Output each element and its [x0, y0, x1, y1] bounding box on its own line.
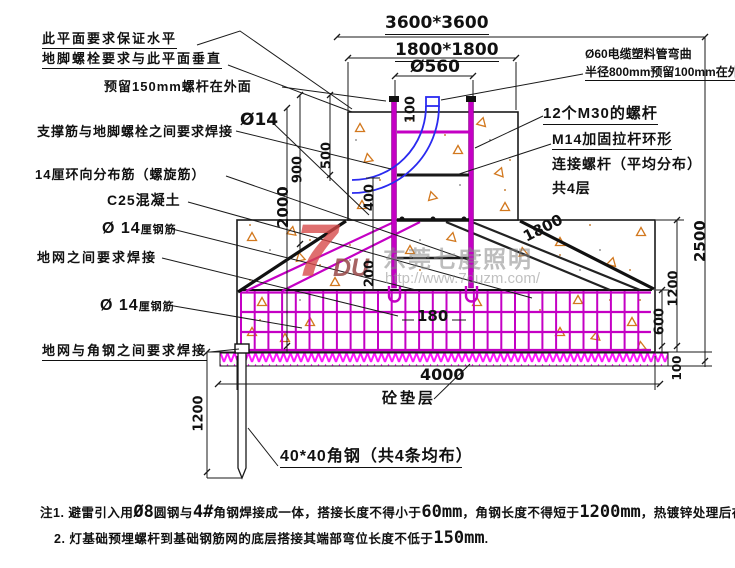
label-rebar14-upper-dia: Ø 14	[102, 220, 141, 237]
label-rebar14-upper-text: 厘钢筋	[141, 224, 177, 236]
label-spiral-rebar: 14厘环向分布筋（螺旋筋）	[35, 167, 205, 183]
note1-text-a: 注1. 避雷引入用	[40, 506, 133, 520]
dim-1200-right: 1200	[667, 269, 682, 309]
label-reserve-150: 预留150mm螺杆在外面	[104, 79, 252, 95]
label-rebar14-lower-text: 厘钢筋	[139, 301, 175, 313]
note1-text-g: ，角钢长度不得短于	[462, 506, 579, 520]
label-concrete-c25: C25混凝土	[107, 192, 181, 209]
dim-900: 900	[291, 150, 306, 190]
note1-text-e: 角钢焊接成一体，搭接长度不得小于	[213, 506, 421, 520]
dim-4000: 4000	[420, 365, 465, 384]
label-rebar14-lower-dia: Ø 14	[100, 297, 139, 314]
label-angle-steel: 40*40角钢（共4条均布）	[280, 447, 462, 468]
note2-text-a: 2. 灯基础预埋螺杆到基础钢筋网的底层搭接其端部弯位长度不低于	[54, 532, 433, 546]
label-anchor-perpendicular: 地脚螺栓要求与此平面垂直	[42, 51, 222, 69]
label-tie-m14-line1: M14加固拉杆环形	[552, 131, 672, 150]
label-bolts-m30: 12个M30的螺杆	[543, 105, 658, 125]
dim-2500: 2500	[691, 222, 709, 262]
note1-num-d8: Ø8	[133, 502, 153, 522]
note1-text-i: ，热镀锌处理后在浇入素砼前打入基础坑底	[641, 506, 735, 520]
note2-num-150: 150mm	[433, 528, 484, 548]
foundation-drawing: 7 DU 东莞七度照明 http://www.7duzm.com/ 此平面要求保…	[0, 0, 735, 568]
label-rebar14-upper: Ø 14厘钢筋	[102, 219, 177, 238]
dim-200: 200	[363, 254, 378, 294]
dim-1200-left: 1200	[192, 394, 207, 434]
note1-num-4: 4#	[193, 502, 213, 522]
label-cable-pipe-2: 半径800mm预留100mm在外面	[585, 65, 735, 81]
dim-plan-outer: 3600*3600	[385, 13, 489, 35]
label-tie-m14-line3: 共4层	[552, 180, 591, 197]
dim-180: 180	[417, 307, 448, 325]
label-cable-pipe-1: Ø60电缆塑料管弯曲	[585, 47, 692, 61]
dim-bolt-circle: Ø560	[410, 57, 460, 77]
note-line-2: 2. 灯基础预埋螺杆到基础钢筋网的底层搭接其端部弯位长度不低于150mm.	[54, 528, 489, 548]
label-plane-level: 此平面要求保证水平	[42, 31, 177, 49]
dim-100-top: 100	[404, 90, 419, 130]
note-line-1: 注1. 避雷引入用Ø8圆钢与4#角钢焊接成一体，搭接长度不得小于60mm，角钢长…	[40, 502, 735, 522]
note1-text-c: 圆钢与	[154, 506, 193, 520]
label-dia14: Ø14	[240, 110, 278, 130]
dim-500: 500	[320, 136, 335, 176]
label-tie-m14-line2: 连接螺杆（平均分布）	[552, 156, 702, 173]
note1-num-60: 60mm	[421, 502, 462, 522]
dim-600: 600	[653, 302, 668, 342]
label-net-angle-weld: 地网与角钢之间要求焊接	[42, 343, 207, 361]
label-cushion: 砼垫层	[382, 390, 436, 408]
label-rebar14-lower: Ø 14厘钢筋	[100, 296, 175, 315]
note1-num-1200: 1200mm	[579, 502, 640, 522]
dim-100-right: 100	[670, 348, 684, 388]
note2-text-c: .	[485, 532, 489, 546]
dim-400: 400	[363, 178, 378, 218]
label-support-weld: 支撑筋与地脚螺栓之间要求焊接	[37, 124, 233, 140]
label-ground-net-weld: 地网之间要求焊接	[37, 250, 157, 266]
dim-2000: 2000	[274, 188, 292, 228]
